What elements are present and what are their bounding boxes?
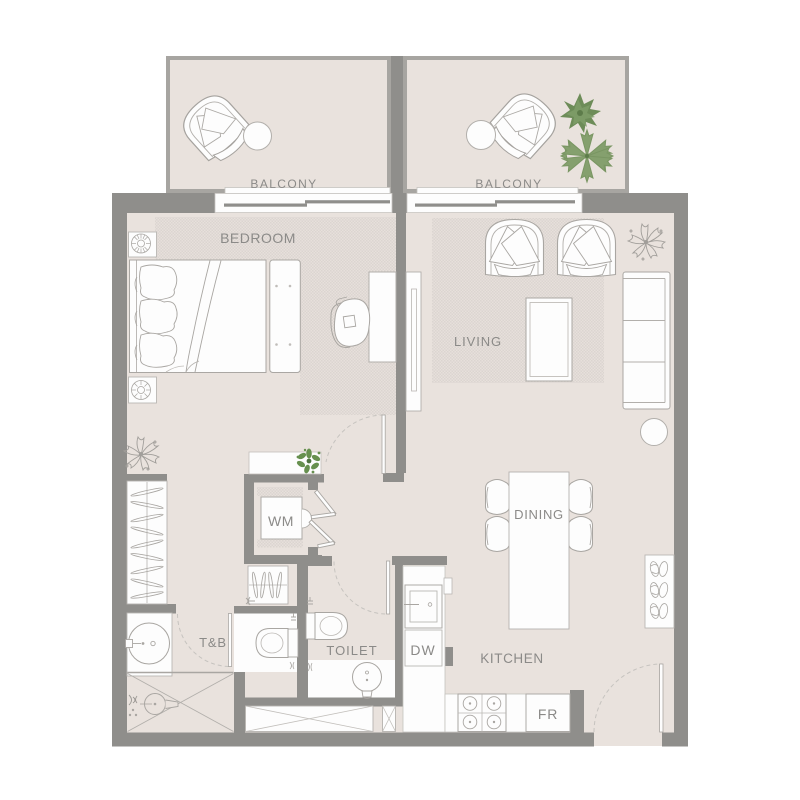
svg-text:BALCONY: BALCONY [475,177,542,191]
svg-text:TOILET: TOILET [326,643,377,658]
svg-text:LIVING: LIVING [454,334,502,349]
svg-text:T&B: T&B [199,635,227,650]
svg-text:BALCONY: BALCONY [250,177,317,191]
svg-text:KITCHEN: KITCHEN [480,651,543,666]
svg-text:DW: DW [410,642,435,658]
svg-text:DINING: DINING [514,507,564,522]
svg-text:FR: FR [538,706,558,722]
svg-text:BEDROOM: BEDROOM [220,230,296,246]
svg-text:WM: WM [268,513,294,529]
